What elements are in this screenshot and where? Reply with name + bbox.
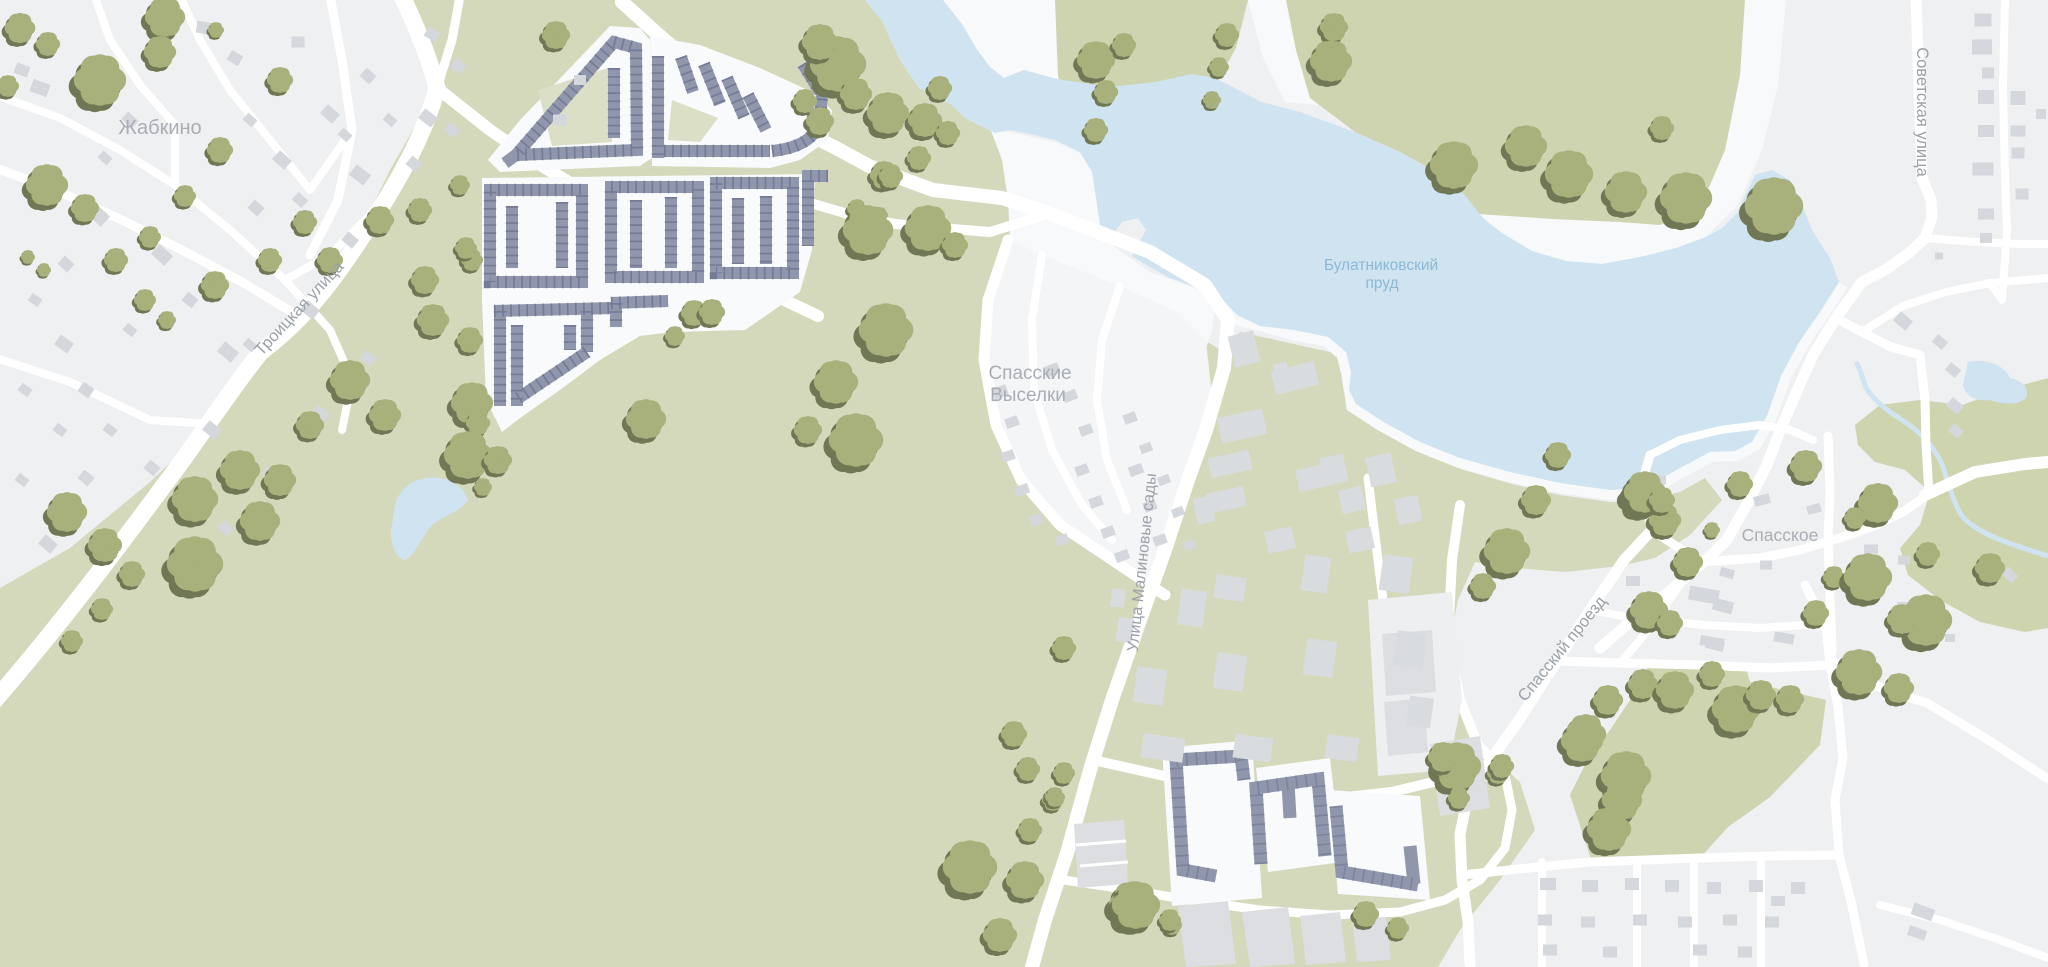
svg-text:пруд: пруд <box>1365 275 1398 292</box>
svg-text:Булатниковский: Булатниковский <box>1324 257 1438 274</box>
svg-text:Спасское: Спасское <box>1742 525 1819 545</box>
svg-text:Выселки: Выселки <box>990 385 1066 406</box>
svg-text:Советская улица: Советская улица <box>1913 47 1931 177</box>
svg-text:Спасские: Спасские <box>988 363 1071 384</box>
svg-text:Жабкино: Жабкино <box>118 117 201 139</box>
